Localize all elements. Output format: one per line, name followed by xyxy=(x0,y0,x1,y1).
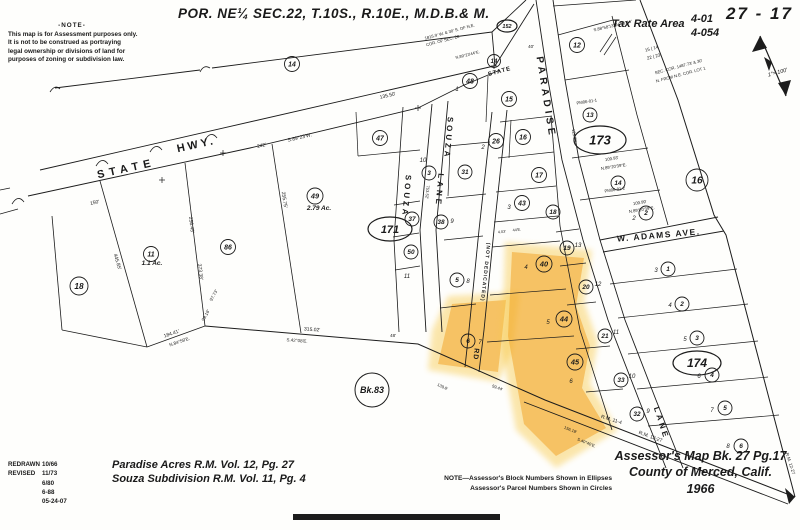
revision-date: 10/66 xyxy=(42,460,57,469)
lot-number: 3 xyxy=(654,268,658,274)
bearing-distance-label: S.88°58'13″W. 91.44' xyxy=(593,19,633,33)
legend-note: NOTE—Assessor's Block Numbers Shown in E… xyxy=(192,474,612,493)
parcel-number-circle: 49 xyxy=(307,188,323,204)
parcel-boundary xyxy=(356,112,358,156)
parcel-boundary xyxy=(395,266,420,270)
road-break-mark xyxy=(150,146,162,152)
bearing-distance-label: S.89°23'W. xyxy=(287,132,312,143)
parcel-number: 3 xyxy=(695,335,699,342)
parcel-number-circle: 5 xyxy=(718,401,732,415)
parcel-number: 37 xyxy=(408,216,416,223)
bearing-distance-label: 4.03' xyxy=(498,230,507,235)
stamp-line: 1966 xyxy=(588,481,800,497)
lot-number: 2 xyxy=(631,216,636,222)
legend-note-line: Assessor's Parcel Numbers Shown in Circl… xyxy=(192,484,612,494)
street-name-label: HWY. xyxy=(176,135,217,155)
parcel-number-circle: 15 xyxy=(502,92,517,107)
parcel-number: 31 xyxy=(461,169,469,176)
revision-date: 6/80 xyxy=(42,479,54,488)
bearing-distance-label: 242' xyxy=(257,142,267,150)
parcel-boundary xyxy=(509,120,511,158)
lot-number: 4 xyxy=(668,303,672,309)
bearing-distance-label: 109.93' xyxy=(605,155,619,162)
parcel-boundary xyxy=(565,70,629,80)
parcel-number: 14 xyxy=(491,59,498,65)
lot-number: 12 xyxy=(595,282,602,288)
bearing-distance-label: 753.52' xyxy=(424,185,430,199)
parcel-number-circle: 26 xyxy=(489,134,504,149)
parcel-number: 2 xyxy=(643,210,648,217)
parcel-number-circle: 3 xyxy=(422,166,436,180)
parcel-boundary xyxy=(486,76,488,122)
street-name-label: PARADISE xyxy=(534,56,558,140)
lot-number: 13 xyxy=(575,243,582,249)
bearing-distance-label: 59.44' xyxy=(491,383,503,392)
parcel-boundary xyxy=(637,377,768,389)
parcel-number: 21 xyxy=(600,333,609,340)
parcel-number-circle: 13 xyxy=(583,108,597,122)
parcel-number: 43 xyxy=(517,200,526,207)
block-number: 152 xyxy=(502,24,511,30)
block-number: 171 xyxy=(381,224,399,236)
parcel-number-circle: 14 xyxy=(285,57,300,72)
parcel-number: 47 xyxy=(375,135,385,142)
bearing-distance-label: 255.75' xyxy=(280,191,288,208)
parcel-number: 48 xyxy=(465,78,474,85)
road-break-mark xyxy=(96,160,108,166)
bearing-distance-label: 315.02' xyxy=(304,326,321,333)
adjacent-book-circle: Bk.83 xyxy=(355,373,389,407)
block-number-ellipse: 171 xyxy=(368,217,412,241)
lot-number: 2 xyxy=(480,145,485,151)
lot-number: 10 xyxy=(629,374,636,380)
parcel-number: 5 xyxy=(723,405,727,412)
bearing-distance-label: 256.45' xyxy=(187,216,195,233)
street-name-label: SOUZA xyxy=(400,174,413,218)
bearing-distance-label: 445.85' xyxy=(112,253,122,270)
lot-number: 8 xyxy=(466,279,470,285)
parcel-number: 38 xyxy=(437,219,445,226)
parcel-boundary xyxy=(600,34,612,52)
parcel-number-circle: 5 xyxy=(450,273,464,287)
parcel-number-circle: 16 xyxy=(516,130,531,145)
revision-date: 11/73 xyxy=(42,469,57,478)
lot-number: 7 xyxy=(710,408,714,414)
parcel-number-circle: 12 xyxy=(570,38,585,53)
parcel-number: 5 xyxy=(455,277,459,284)
parcel-boundary xyxy=(394,107,403,332)
bearing-distance-label: 150' xyxy=(90,199,100,207)
parcel-boundary xyxy=(0,209,18,214)
block-number-ellipse: 174 xyxy=(673,351,721,375)
bearing-distance-label: 22 | 23 xyxy=(646,52,661,60)
parcel-number: 20 xyxy=(581,284,590,291)
parcel-boundary xyxy=(553,0,636,6)
street-name-label: (NOT DEDICATED) xyxy=(479,242,491,301)
stamp-line: County of Merced, Calif. xyxy=(588,464,800,480)
parcel-number-circle: 3 xyxy=(690,331,704,345)
bearing-distance-label: N.89°23'44″E. xyxy=(455,49,480,60)
lot-number: 11 xyxy=(613,330,619,336)
north-arrow-head xyxy=(752,36,767,52)
parcel-number-circle: 38 xyxy=(434,215,448,229)
street-name-label: STATE xyxy=(487,66,512,78)
legend-note-line: NOTE—Assessor's Block Numbers Shown in E… xyxy=(192,474,612,484)
parcel-number: 33 xyxy=(617,377,625,384)
parcel-number-circle: 1 xyxy=(661,262,675,276)
bearing-distance-label: 48' xyxy=(390,333,396,338)
parcel-boundary xyxy=(612,16,668,225)
parcel-number-circle: 50 xyxy=(404,245,418,259)
bearing-distance-label: 40' xyxy=(528,44,534,49)
lot-number: 3 xyxy=(507,205,511,211)
parcel-number-circle: 32 xyxy=(630,407,644,421)
block-number-ellipse: 173 xyxy=(574,126,626,154)
parcel-boundary xyxy=(55,70,200,88)
parcel-number-circle: 18 xyxy=(70,277,88,295)
parcel-number: 86 xyxy=(224,244,232,251)
parcel-boundary xyxy=(100,181,147,347)
parcel-number: 13 xyxy=(586,112,594,119)
parcel-boundary xyxy=(52,216,62,330)
parcel-number-circle: 33 xyxy=(614,373,628,387)
parcel-number-circle: 21 xyxy=(598,329,612,343)
parcel-number: 18 xyxy=(74,282,84,291)
parcel-boundary xyxy=(604,37,616,55)
parcel-boundary xyxy=(272,144,301,333)
parcel-boundary xyxy=(556,229,579,232)
parcel-number: 15 xyxy=(505,96,513,103)
parcel-number: 16 xyxy=(691,176,703,187)
parcel-number: 44 xyxy=(559,315,568,324)
revision-label: REVISED xyxy=(8,469,42,478)
parcel-number-circle: 47 xyxy=(373,131,388,146)
revision-label: REDRAWN xyxy=(8,460,42,469)
bearing-distance-label: 373.38' xyxy=(196,263,204,280)
acreage-label: 2.79 Ac. xyxy=(306,205,332,212)
reference-line: Paradise Acres R.M. Vol. 12, Pg. 27 xyxy=(112,458,306,472)
assessor-map-page: -NOTE- This map is for Assessment purpos… xyxy=(0,0,800,530)
parcel-number-circle: 2 xyxy=(675,297,689,311)
parcel-boundary xyxy=(0,188,10,190)
stamp-line: Assessor's Map Bk. 27 Pg.17 xyxy=(588,448,800,464)
parcel-number: 49 xyxy=(310,192,320,201)
bearing-distance-label: S.42°08'E. xyxy=(286,337,307,343)
bearing-distance-label: 109.99' xyxy=(633,199,647,206)
bearing-distance-label: 97.73' xyxy=(209,289,219,302)
parcel-number-circle: 18 xyxy=(546,205,560,219)
parcel-number-circle: 48 xyxy=(463,74,478,89)
lot-number: 5 xyxy=(683,337,687,343)
book-number: Bk.83 xyxy=(360,385,384,395)
bearing-distance-label: N.84°59'E. xyxy=(169,336,191,348)
scale-bar xyxy=(293,514,500,520)
road-break-mark xyxy=(200,67,210,72)
parcel-boundary xyxy=(495,4,534,66)
bearing-distance-label: 99.18' xyxy=(201,309,211,322)
bearing-distance-label: 135.50' xyxy=(379,91,396,101)
bearing-distance-label: 139.8' xyxy=(436,382,449,391)
parcel-number-circle: 17 xyxy=(532,168,547,183)
bearing-distance-label: N.89°20'39″E. xyxy=(628,205,655,214)
parcel-number: 11 xyxy=(147,251,154,258)
parcel-boundary xyxy=(498,152,554,158)
parcel-number: 17 xyxy=(535,172,544,179)
lot-number: 9 xyxy=(450,219,454,225)
parcel-number: 6 xyxy=(466,338,470,345)
parcel-boundary xyxy=(185,163,205,326)
parcel-number: 3 xyxy=(427,170,431,177)
parcel-number-circle: 86 xyxy=(221,240,236,255)
lot-number: 1 xyxy=(455,87,458,93)
lot-number: 11 xyxy=(404,274,410,280)
assessor-stamp: Assessor's Map Bk. 27 Pg.17 County of Me… xyxy=(588,448,800,497)
parcel-number: 2 xyxy=(679,301,684,308)
parcel-number: 19 xyxy=(563,245,571,252)
parcel-boundary xyxy=(610,269,737,284)
parcel-number: 14 xyxy=(288,61,296,68)
revision-date: 6-88 xyxy=(42,488,54,497)
parcel-number: 40 xyxy=(539,260,549,269)
parcel-number: 14 xyxy=(614,180,622,187)
parcel-boundary xyxy=(496,186,556,192)
lot-number: 10 xyxy=(420,158,427,164)
bearing-distance-label: PM06-01-1 xyxy=(576,97,598,105)
bearing-distance-label: 44'E. xyxy=(512,228,521,233)
street-name-label: SOUZA xyxy=(442,116,455,160)
parcel-number-circle: 16 xyxy=(686,169,708,191)
street-name-label: LANE xyxy=(434,173,446,207)
bearing-distance-label: N.89°20'39″E. xyxy=(600,162,627,171)
bearing-distance-label: 15 | 14 xyxy=(644,44,659,52)
parcel-number-circle: 31 xyxy=(458,165,472,179)
revision-history: REDRAWN10/66 REVISED11/73 6/80 6-88 05-2… xyxy=(8,460,67,506)
lot-number: 9 xyxy=(646,409,650,415)
block-number-ellipse: 152 xyxy=(497,20,517,32)
parcel-number: 1 xyxy=(666,266,670,273)
street-name-label: RD xyxy=(471,348,479,361)
parcel-number: 26 xyxy=(491,138,500,145)
parcel-boundary xyxy=(446,194,486,198)
north-arrow-fletch xyxy=(764,57,772,71)
parcel-boundary xyxy=(358,150,420,156)
road-break-mark xyxy=(12,198,24,204)
street-name-label: STATE xyxy=(96,157,157,182)
parcel-number: 50 xyxy=(407,249,415,256)
parcel-boundary xyxy=(648,415,779,426)
revision-date: 05-24-07 xyxy=(42,497,67,506)
north-arrow xyxy=(752,36,791,96)
parcel-boundary xyxy=(580,190,660,200)
parcel-number: 12 xyxy=(573,42,581,49)
block-number: 174 xyxy=(687,356,707,370)
parcel-boundary xyxy=(420,104,432,332)
parcel-number: 32 xyxy=(633,411,641,418)
parcel-number-circle: 37 xyxy=(405,212,419,226)
parcel-number-circle: 43 xyxy=(515,196,530,211)
parcel-number: 45 xyxy=(570,358,580,367)
parcel-boundary xyxy=(62,330,147,347)
parcel-number: 18 xyxy=(549,209,557,216)
parcel-boundary xyxy=(628,341,758,354)
parcel-number: 16 xyxy=(519,134,527,141)
block-number: 173 xyxy=(589,133,611,148)
parcel-boundary xyxy=(444,236,483,240)
